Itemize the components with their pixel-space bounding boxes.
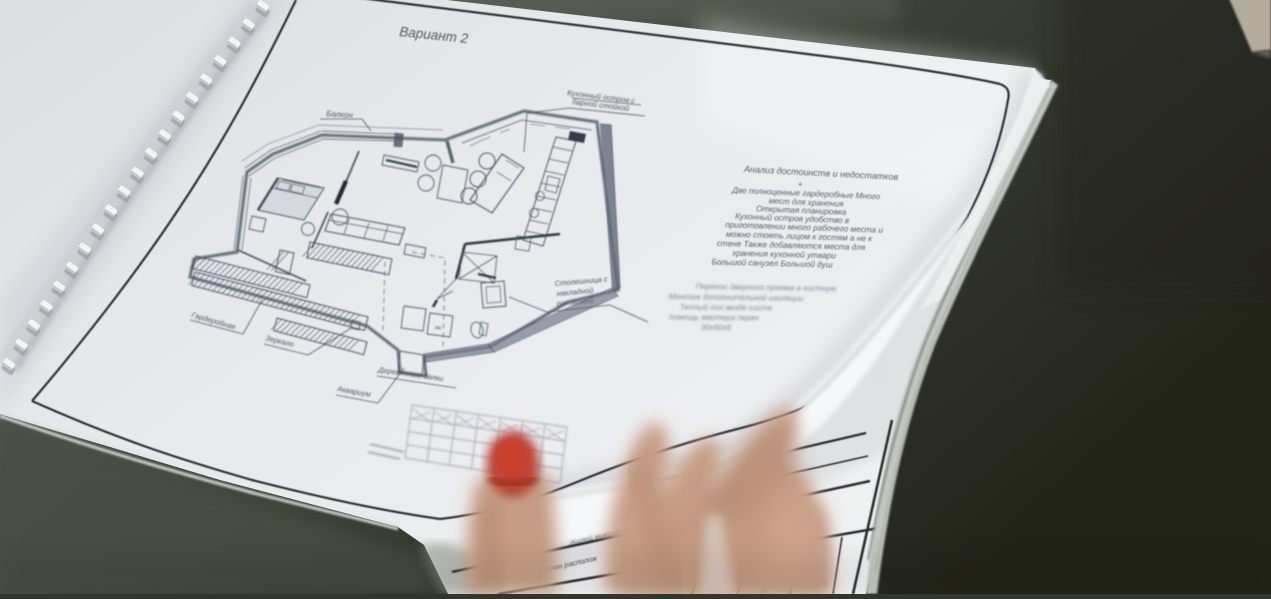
svg-text:мс: мс	[435, 325, 442, 332]
svg-text:Теплый пол везде систе: Теплый пол везде систе	[680, 303, 773, 313]
svg-text:помощь мастера переч: помощь мастера переч	[669, 313, 759, 323]
svg-text:30х50х6: 30х50х6	[701, 323, 732, 332]
svg-text:Монтаж дополнительной изоляции: Монтаж дополнительной изоляции	[669, 292, 805, 303]
svg-text:Балкон: Балкон	[326, 109, 354, 120]
